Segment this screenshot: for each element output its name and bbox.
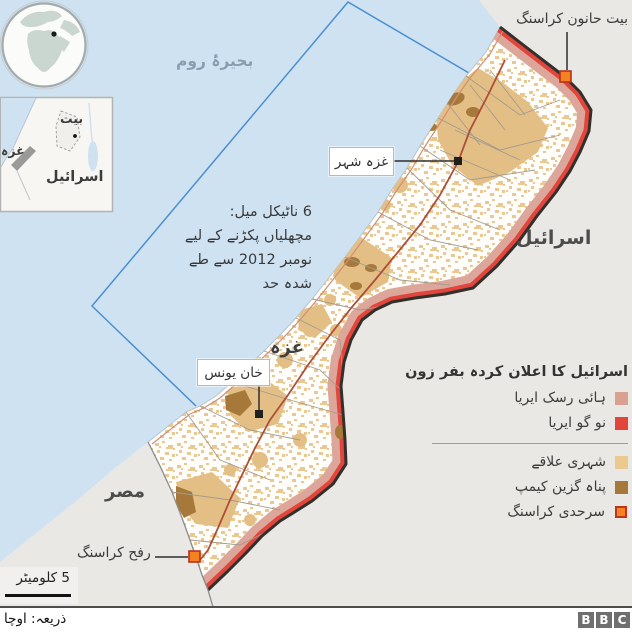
- gaza-city-callout: غزہ شہر: [329, 147, 394, 176]
- gaza-city-label: غزہ شہر: [335, 154, 388, 170]
- beit-hanoun-crossing-label: بیت حانون کراسنگ: [516, 11, 628, 27]
- scale-bar-line: [5, 594, 71, 597]
- legend-item-camp: پناہ گزین کیمپ: [398, 479, 628, 495]
- crossing-swatch-icon: [615, 506, 627, 518]
- legend-title: اسرائیل کا اعلان کردہ بفر زون: [398, 364, 628, 380]
- khan-younis-marker: [255, 410, 263, 418]
- legend-item-no-go: نو گو ایریا: [398, 415, 628, 431]
- bbc-logo: B B C: [578, 612, 630, 628]
- legend-item-label: پناہ گزین کیمپ: [515, 479, 606, 495]
- legend-item-crossing: سرحدی کراسنگ: [398, 504, 628, 520]
- urban-swatch-icon: [615, 456, 628, 469]
- map-legend: اسرائیل کا اعلان کردہ بفر زون ہائی رسک ا…: [398, 364, 628, 529]
- fishing-limit-note: 6 ناٹیکل میل: مچھلیاں پکڑنے کے لیے نومبر…: [185, 200, 312, 296]
- high-risk-swatch-icon: [615, 392, 628, 405]
- legend-item-label: ہائی رسک ایریا: [514, 390, 606, 406]
- scale-bar: 5 کلومیٹر: [0, 567, 78, 604]
- israel-label: اسرائیل: [516, 227, 591, 249]
- bbc-logo-block: B: [596, 612, 612, 628]
- legend-item-high-risk: ہائی رسک ایریا: [398, 390, 628, 406]
- egypt-label: مصر: [105, 481, 145, 502]
- inset-gaza-label: غزہ: [1, 143, 25, 158]
- bbc-logo-block: C: [614, 612, 630, 628]
- fishing-note-line4: شدہ حد: [185, 272, 312, 296]
- rafah-crossing-label: رفح کراسنگ: [77, 545, 151, 561]
- locator-globe: [0, 1, 88, 89]
- scale-label: 5 کلومیٹر: [16, 570, 70, 586]
- source-credit: ذریعہ: اوچا: [4, 611, 66, 627]
- gaza-strip-label: غزہ: [270, 337, 304, 358]
- camp-swatch-icon: [615, 481, 628, 494]
- no-go-swatch-icon: [615, 417, 628, 430]
- sea-label: بحیرۂ روم: [176, 52, 253, 70]
- khan-younis-callout: خان یونس: [197, 359, 270, 386]
- inset-israel-label: اسرائیل: [46, 169, 104, 185]
- globe-location-dot: [51, 31, 56, 36]
- fishing-note-line1: 6 ناٹیکل میل:: [185, 200, 312, 224]
- rafah-crossing-marker: [189, 551, 200, 562]
- legend-item-urban: شہری علاقے: [398, 454, 628, 470]
- legend-item-label: نو گو ایریا: [548, 415, 606, 431]
- gaza-city-marker: [454, 157, 462, 165]
- legend-item-label: سرحدی کراسنگ: [507, 504, 605, 520]
- gaza-map-graphic: [0, 0, 632, 632]
- khan-younis-label: خان یونس: [204, 365, 262, 381]
- legend-divider: [432, 443, 628, 444]
- beit-hanoun-crossing-marker: [560, 71, 571, 82]
- footer: ذریعہ: اوچا B B C: [0, 608, 632, 632]
- map-canvas: بحیرۂ روم 6 ناٹیکل میل: مچھلیاں پکڑنے کے…: [0, 0, 632, 632]
- bbc-logo-block: B: [578, 612, 594, 628]
- fishing-note-line2: مچھلیاں پکڑنے کے لیے: [185, 224, 312, 248]
- legend-item-label: شہری علاقے: [531, 454, 606, 470]
- fishing-note-line3: نومبر 2012 سے طے: [185, 248, 312, 272]
- inset-bayt-label: بیت: [60, 111, 83, 126]
- inset-city-dot: [73, 134, 77, 138]
